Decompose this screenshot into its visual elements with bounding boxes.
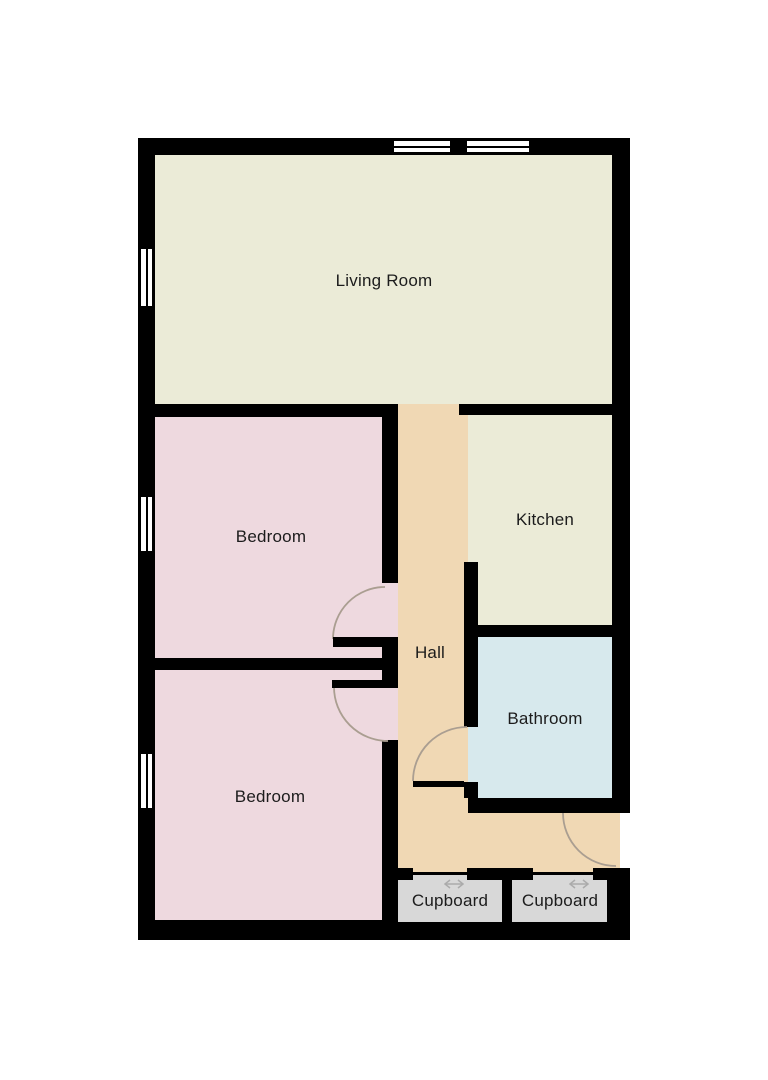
bedroom-1-door-arc <box>333 587 385 639</box>
door-symbols-layer <box>0 0 768 1080</box>
entrance-door-arc <box>563 813 616 866</box>
floor-plan: Living Room Bedroom Kitchen Hall Bathroo… <box>0 0 768 1080</box>
bedroom-2-label: Bedroom <box>235 787 305 807</box>
kitchen-label: Kitchen <box>516 510 574 530</box>
cupboard-2-label: Cupboard <box>522 891 598 911</box>
cupboard-1-slide-arrow-icon <box>445 880 463 888</box>
bathroom-door-leaf <box>413 781 464 787</box>
bedroom-1-door-leaf <box>333 637 385 647</box>
bathroom-door-arc <box>413 727 467 781</box>
bedroom-1-label: Bedroom <box>236 527 306 547</box>
bedroom-2-door-arc <box>334 687 388 741</box>
cupboard-2-slide-arrow-icon <box>570 880 588 888</box>
living-room-label: Living Room <box>336 271 433 291</box>
hall-label: Hall <box>415 643 445 663</box>
bedroom-2-door-leaf <box>332 680 386 688</box>
bathroom-label: Bathroom <box>507 709 582 729</box>
cupboard-1-label: Cupboard <box>412 891 488 911</box>
